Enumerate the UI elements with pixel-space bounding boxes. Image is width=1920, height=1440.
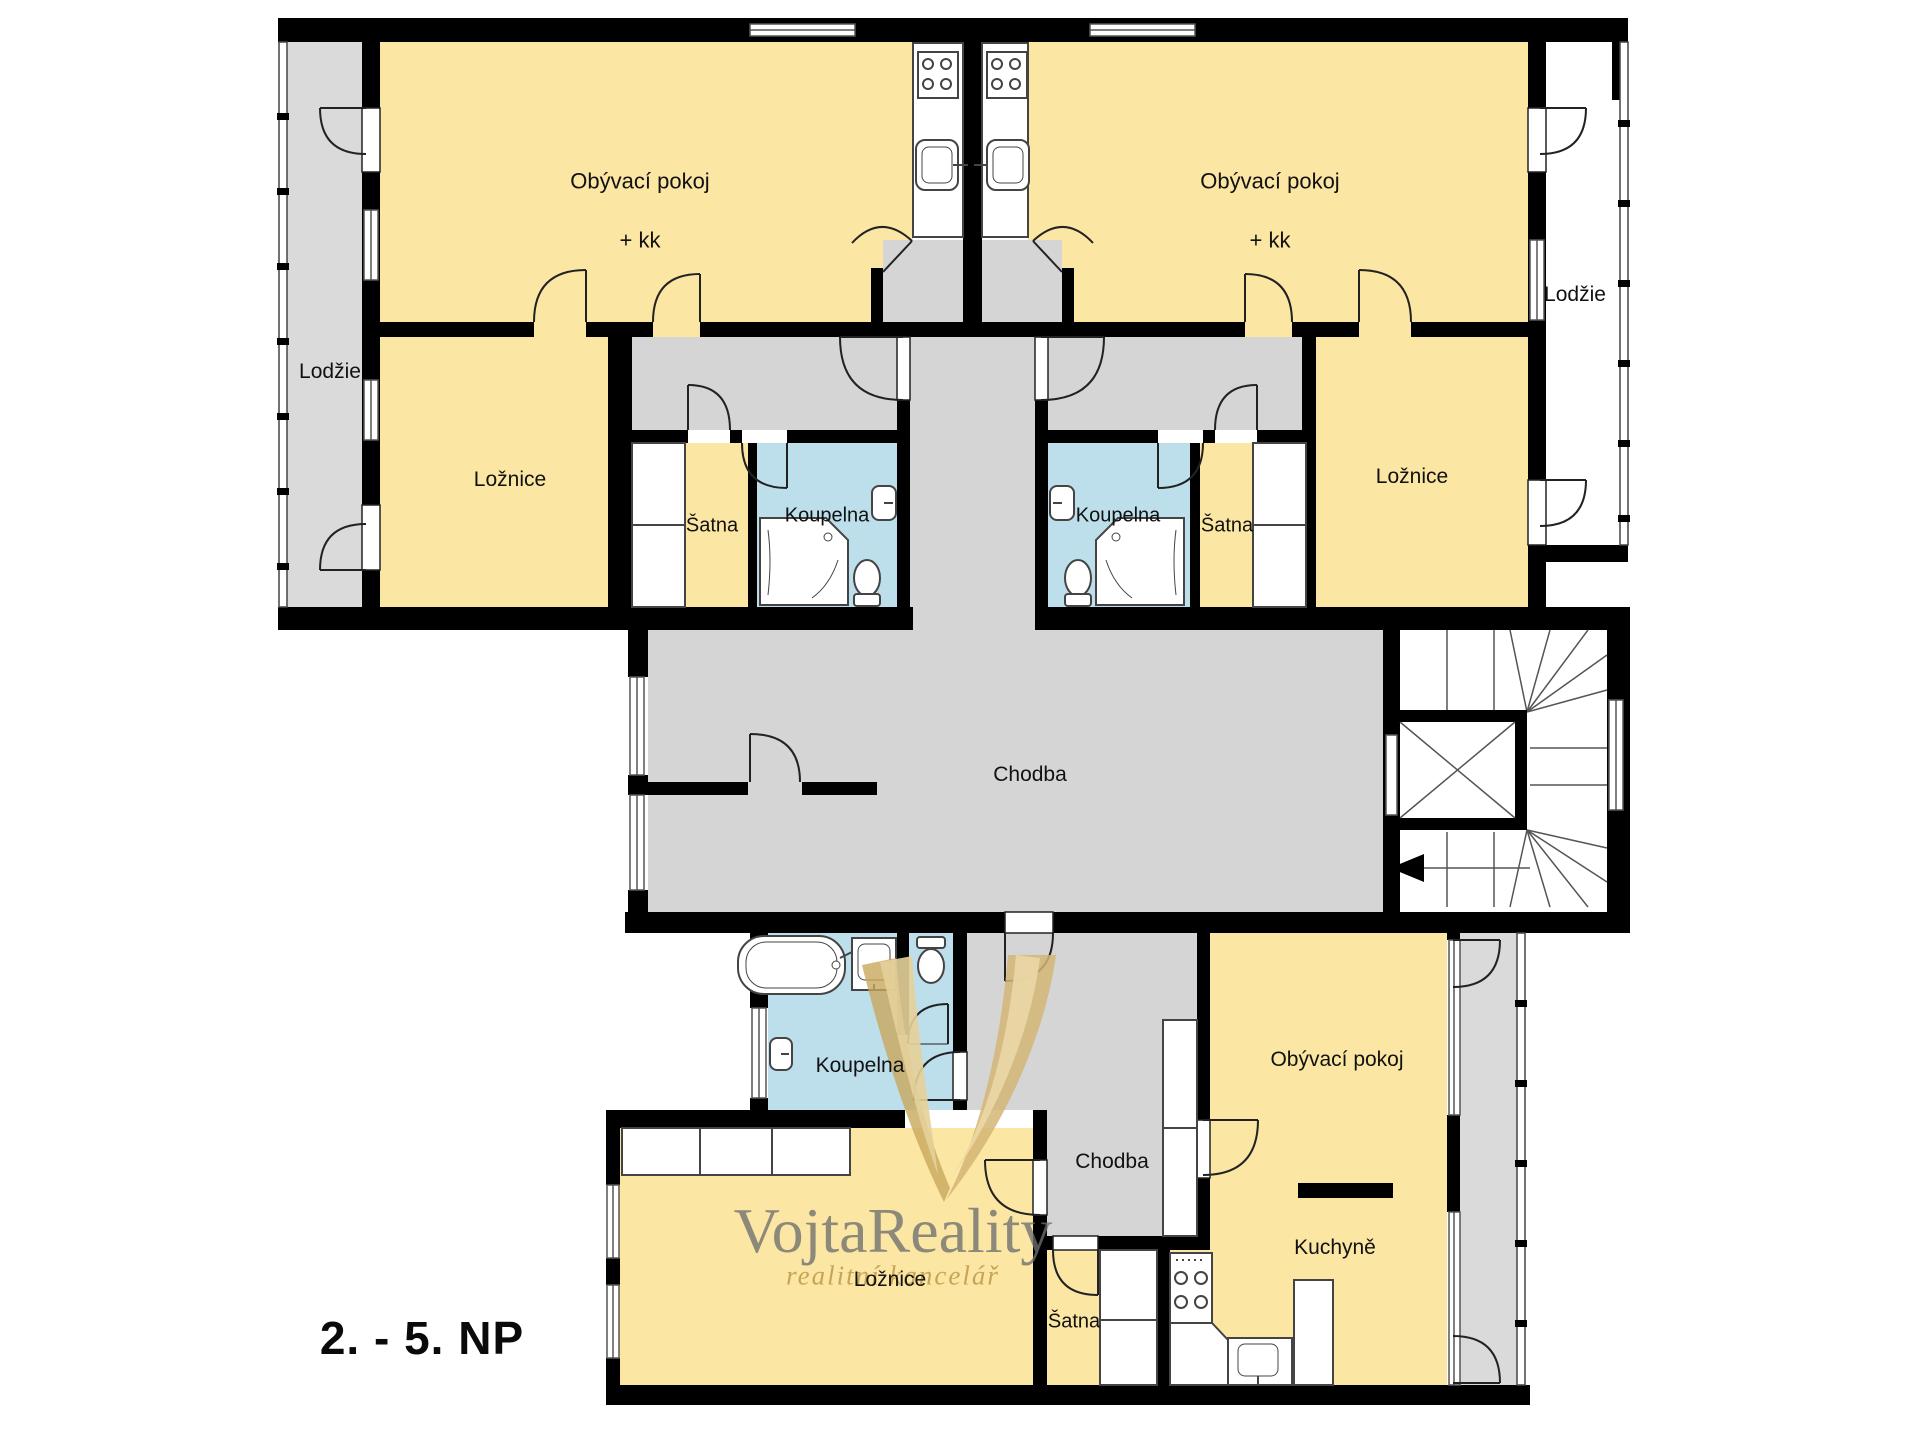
room-label-bedroom-upper-right: Ložnice <box>1376 463 1448 491</box>
wardrobe-right <box>1253 443 1306 607</box>
shower-icon-left <box>760 518 848 605</box>
window-left-wall-1 <box>364 210 378 280</box>
room-label-loggia-upper-right: Lodžie <box>1544 281 1606 309</box>
window-top-left <box>750 24 855 36</box>
room-label-satna-lower: Šatna <box>1048 1309 1100 1336</box>
floorplan-page: VojtaReality realitní kancelář Obývací p… <box>0 0 1920 1440</box>
window-bedroom-lower-1 <box>607 1185 619 1258</box>
kitchenette-right <box>974 43 1029 237</box>
window-corridor-1 <box>630 677 644 775</box>
wardrobe-band-bedroom-lower <box>622 1128 850 1175</box>
wardrobe-satna-lower <box>1100 1250 1157 1385</box>
toilet-icon-lower <box>917 937 945 983</box>
sink-icon-left-bath <box>872 486 896 520</box>
living-left-suffix: + kk <box>620 228 661 253</box>
kitchenette-left <box>913 43 968 237</box>
room-label-bath-lower: Koupelna <box>816 1052 905 1080</box>
window-bath-lower <box>752 1008 766 1098</box>
room-label-kitchen-lower: Kuchyně <box>1294 1234 1376 1262</box>
wardrobe-hall-lower <box>1163 1020 1197 1236</box>
room-label-bedroom-lower: Ložnice <box>854 1266 926 1294</box>
room-label-living-upper-left: Obývací pokoj + kk <box>570 137 709 256</box>
window-stairwell <box>1609 700 1623 810</box>
stove-icon-kitchen-lower <box>1170 1253 1212 1323</box>
wardrobe-left <box>632 443 685 607</box>
stove-icon <box>987 52 1027 98</box>
stove-icon <box>918 52 958 98</box>
room-label-corridor-common: Chodba <box>993 761 1067 789</box>
kitchen-sink-icon <box>1228 1338 1292 1385</box>
window-living-lower-2 <box>1449 1212 1460 1385</box>
sink-icon-right-bath <box>1050 486 1074 520</box>
elevator <box>1386 710 1527 830</box>
elevator-door <box>1386 735 1397 815</box>
room-label-living-upper-right: Obývací pokoj + kk <box>1200 137 1339 256</box>
floor-number-label: 2. - 5. NP <box>320 1311 524 1365</box>
room-label-satna-upper-right: Šatna <box>1201 513 1253 540</box>
corridor-arm <box>910 337 1035 630</box>
room-label-living-lower: Obývací pokoj <box>1270 1046 1403 1074</box>
sink-icon-lower-bath-left <box>770 1038 792 1070</box>
room-hall-right <box>1048 337 1302 430</box>
toilet-icon-left <box>854 560 880 606</box>
window-right-wall <box>1530 240 1544 320</box>
shower-icon-right <box>1096 518 1184 605</box>
room-loggia-lower <box>1460 933 1517 1385</box>
kitchen-counter-corner <box>1170 1323 1228 1385</box>
window-living-lower-1 <box>1449 940 1460 1115</box>
kitchen-counter-bar <box>1298 1183 1393 1198</box>
room-loggia-upper-left <box>286 42 362 607</box>
room-label-bath-upper-right: Koupelna <box>1076 503 1161 530</box>
bathtub-icon <box>738 936 852 994</box>
kitchen-cabinet <box>1294 1280 1333 1385</box>
window-top-right <box>1090 24 1195 36</box>
living-right-suffix: + kk <box>1250 228 1291 253</box>
room-label-satna-upper-left: Šatna <box>686 513 738 540</box>
watermark-brand: VojtaReality <box>734 1194 1053 1268</box>
room-label-loggia-upper-left: Lodžie <box>299 358 361 386</box>
window-left-wall-2 <box>364 380 378 440</box>
room-label-bath-upper-left: Koupelna <box>785 503 870 530</box>
toilet-icon-right <box>1065 560 1091 606</box>
living-right-name: Obývací pokoj <box>1200 168 1339 193</box>
room-label-hall-lower: Chodba <box>1075 1148 1149 1176</box>
living-left-name: Obývací pokoj <box>570 168 709 193</box>
window-bedroom-lower-2 <box>607 1285 619 1358</box>
room-label-bedroom-upper-left: Ložnice <box>474 466 546 494</box>
window-corridor-2 <box>630 795 644 890</box>
